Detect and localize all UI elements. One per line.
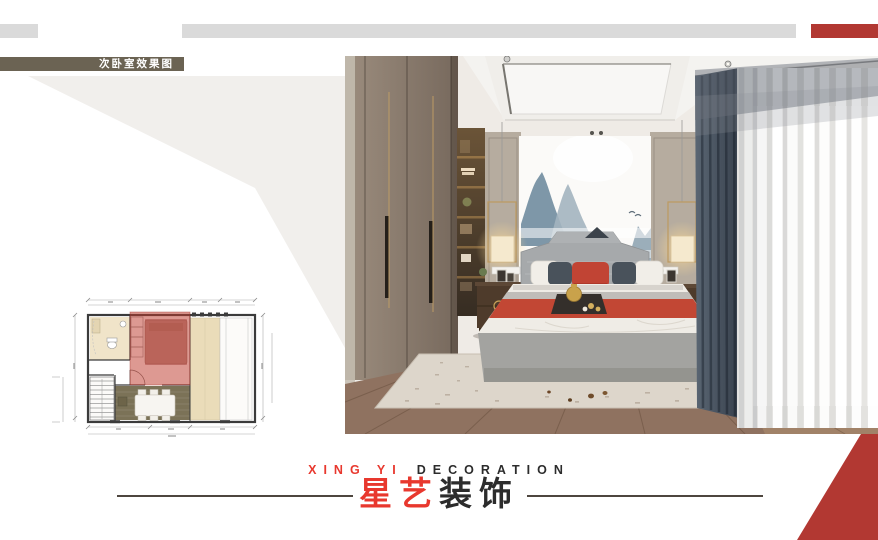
slide-title-bar: 次卧室效果图 (0, 57, 184, 71)
top-red-bar (811, 24, 878, 38)
slide-title: 次卧室效果图 (99, 58, 174, 70)
top-gray-bar-left (0, 24, 38, 38)
plant-left (479, 268, 487, 276)
slide: 次卧室效果图 (0, 0, 878, 540)
floor-plan (50, 293, 285, 445)
wardrobe (345, 56, 458, 386)
plan-bathroom (90, 317, 130, 360)
red-pillow (572, 262, 609, 287)
corner-red-triangle (797, 434, 878, 540)
photo-frame-left (497, 270, 506, 282)
plan-stairs (90, 377, 114, 420)
top-gray-bar-middle (182, 24, 796, 38)
bedroom-render-photo (345, 56, 878, 434)
plan-dining-table (135, 395, 175, 416)
plan-dining-room (115, 386, 190, 421)
plan-bed-highlight (145, 319, 187, 365)
bed (478, 284, 717, 382)
photo-frame-right (667, 270, 676, 282)
plan-balcony-strips (190, 318, 252, 420)
